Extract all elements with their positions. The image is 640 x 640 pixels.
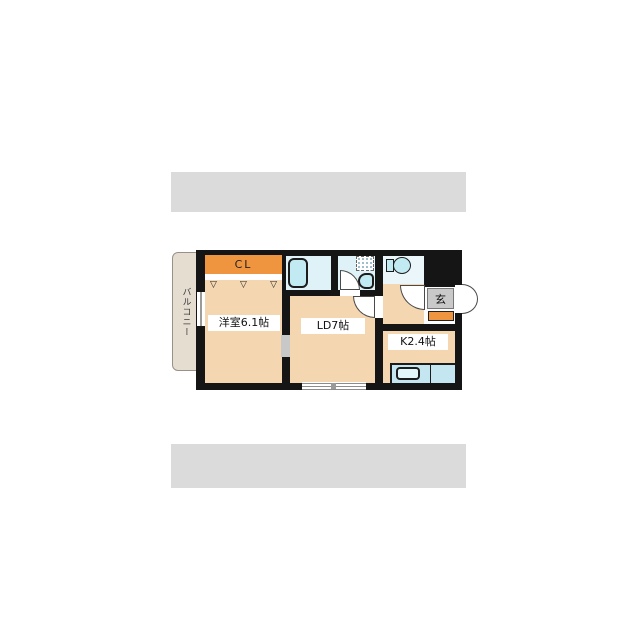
washbasin-icon — [358, 273, 374, 289]
top-gray-band — [171, 172, 466, 212]
western-room-label: 洋室6.1帖 — [208, 315, 280, 331]
sliding-window-latch — [331, 383, 336, 389]
bottom-gray-band — [171, 444, 466, 488]
shoe-cabinet — [428, 311, 454, 321]
kitchen-label: K2.4帖 — [388, 334, 448, 350]
floor-plan: バルコニー CL ▽ ▽ ▽ 玄 — [172, 250, 462, 390]
hanger-icon: ▽ — [270, 280, 277, 291]
hanger-icon: ▽ — [240, 280, 247, 291]
balcony: バルコニー — [172, 252, 198, 371]
entrance-label: 玄 — [435, 291, 446, 307]
hanger-icon: ▽ — [210, 280, 217, 291]
entrance-door-arc — [462, 284, 478, 314]
closet-label: CL — [235, 258, 253, 271]
kitchen-counter-divider — [430, 363, 431, 383]
room-divider-door — [281, 335, 290, 357]
washer-space-icon — [356, 256, 374, 271]
bathtub-icon — [288, 258, 308, 288]
balcony-label: バルコニー — [181, 287, 190, 337]
room-western — [205, 280, 282, 383]
ld-door-gap — [375, 296, 383, 318]
sink-icon — [396, 367, 420, 380]
balcony-window — [197, 292, 205, 326]
genkan-label-box: 玄 — [427, 288, 454, 309]
page: { "rooms": { "balcony": { "label": "バルコニ… — [0, 0, 640, 640]
entrance-door-gap — [455, 285, 462, 313]
toilet-bowl-icon — [393, 257, 411, 274]
closet: CL — [205, 255, 282, 274]
closet-hangers: ▽ ▽ ▽ — [205, 280, 282, 291]
living-dining-label: LD7帖 — [301, 318, 365, 334]
